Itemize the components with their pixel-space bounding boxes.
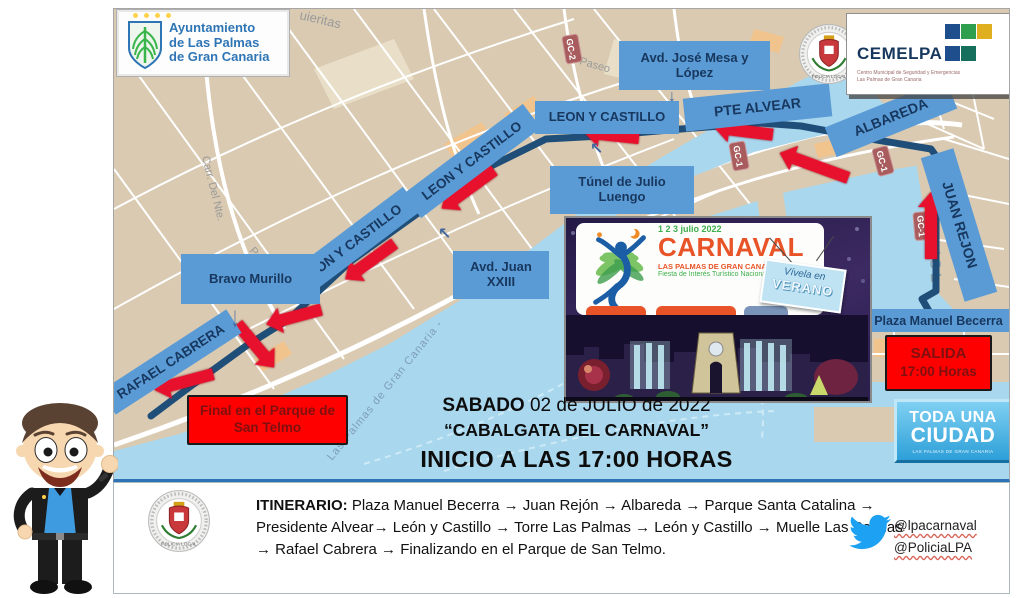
upleft-arrow-icon: ↖ bbox=[590, 142, 603, 158]
toda-una-ciudad-badge: TODA UNA CIUDAD LAS PALMAS DE GRAN CANAR… bbox=[894, 399, 1010, 463]
route-label-juan-xxiii: Avd. Juan XXIII bbox=[453, 251, 549, 299]
police-mascot bbox=[2, 393, 118, 596]
route-label-leon-castillo-1: LEON Y CASTILLO bbox=[535, 101, 679, 134]
cemelpa-logo: CEMELPA Centro Municipal de Seguridad y … bbox=[846, 13, 1010, 95]
ayto-line3: de Gran Canaria bbox=[169, 50, 269, 65]
start-time: 17:00 Horas bbox=[900, 364, 977, 381]
cemelpa-subtitle: Centro Municipal de Seguridad y Emergenc… bbox=[857, 70, 962, 83]
social-handles: @lpacarnaval @PoliciaLPA bbox=[894, 515, 977, 560]
handle-policialpa: @PoliciaLPA bbox=[894, 537, 977, 559]
carnaval-poster: 1 2 3 julio 2022 CARNAVAL LAS PALMAS DE … bbox=[564, 216, 872, 403]
start-box: SALIDA 17:00 Horas bbox=[885, 335, 992, 391]
twitter-icon bbox=[849, 511, 891, 553]
route-label-jose-mesa: Avd. José Mesa y López bbox=[619, 41, 770, 90]
carnival-route-flyer: uieritas Carr. Del Nte. Paseo Paseo ISL … bbox=[0, 0, 1024, 598]
down-arrow-icon: ↓ bbox=[231, 305, 239, 334]
route-label-plaza-becerra: Plaza Manuel Becerra bbox=[867, 309, 1010, 332]
stars-icon bbox=[133, 13, 138, 18]
toda-subtitle: LAS PALMAS DE GRAN CANARIA bbox=[912, 449, 993, 454]
event-name: “CABALGATA DEL CARNAVAL” bbox=[404, 420, 749, 441]
start-label: SALIDA bbox=[911, 345, 967, 364]
itinerary-label: ITINERARIO: bbox=[256, 497, 348, 514]
upleft-arrow-icon: ↖ bbox=[438, 227, 451, 243]
itinerary-text: ITINERARIO: Plaza Manuel Becerra → Juan … bbox=[256, 495, 904, 560]
palm-shield-icon bbox=[125, 19, 165, 71]
itinerary-panel: POLICIA LOCAL ITINERARIO: Plaza Manuel B… bbox=[113, 482, 1010, 594]
down-arrow-icon: ↓ bbox=[668, 89, 676, 105]
carnival-dancer-icon bbox=[578, 225, 664, 313]
handle-lpacarnaval: @lpacarnaval bbox=[894, 515, 977, 537]
itinerary-route: Plaza Manuel Becerra → Juan Rejón → Alba… bbox=[256, 497, 903, 558]
cemelpa-name: CEMELPA bbox=[857, 44, 942, 64]
poster-title: CARNAVAL bbox=[658, 234, 813, 260]
policia-local-badge-icon: POLICIA LOCAL bbox=[147, 489, 211, 553]
stage-photo bbox=[564, 315, 868, 403]
cemelpa-squares-icon bbox=[945, 24, 1002, 68]
svg-text:POLICIA LOCAL: POLICIA LOCAL bbox=[812, 74, 847, 79]
route-label-tunel: Túnel de Julio Luengo bbox=[550, 166, 694, 214]
route-map-panel: uieritas Carr. Del Nte. Paseo Paseo ISL … bbox=[113, 8, 1010, 482]
svg-text:POLICIA LOCAL: POLICIA LOCAL bbox=[161, 542, 197, 548]
event-title-block: SABADO 02 de JULIO de 2022 “CABALGATA DE… bbox=[404, 395, 749, 473]
ayto-line1: Ayuntamiento bbox=[169, 21, 269, 36]
stars-icon bbox=[566, 218, 568, 220]
ayuntamiento-logo: Ayuntamiento de Las Palmas de Gran Canar… bbox=[116, 9, 290, 77]
finish-box: Final en el Parque de San Telmo bbox=[187, 395, 348, 445]
ayto-line2: de Las Palmas bbox=[169, 36, 269, 51]
route-arrow-juan-rejon bbox=[925, 207, 937, 259]
event-date: SABADO 02 de JULIO de 2022 bbox=[404, 395, 749, 417]
event-start-time: INICIO A LAS 17:00 HORAS bbox=[404, 446, 749, 473]
toda-line2: CIUDAD bbox=[911, 424, 996, 448]
route-label-bravo-murillo: Bravo Murillo bbox=[181, 254, 320, 304]
